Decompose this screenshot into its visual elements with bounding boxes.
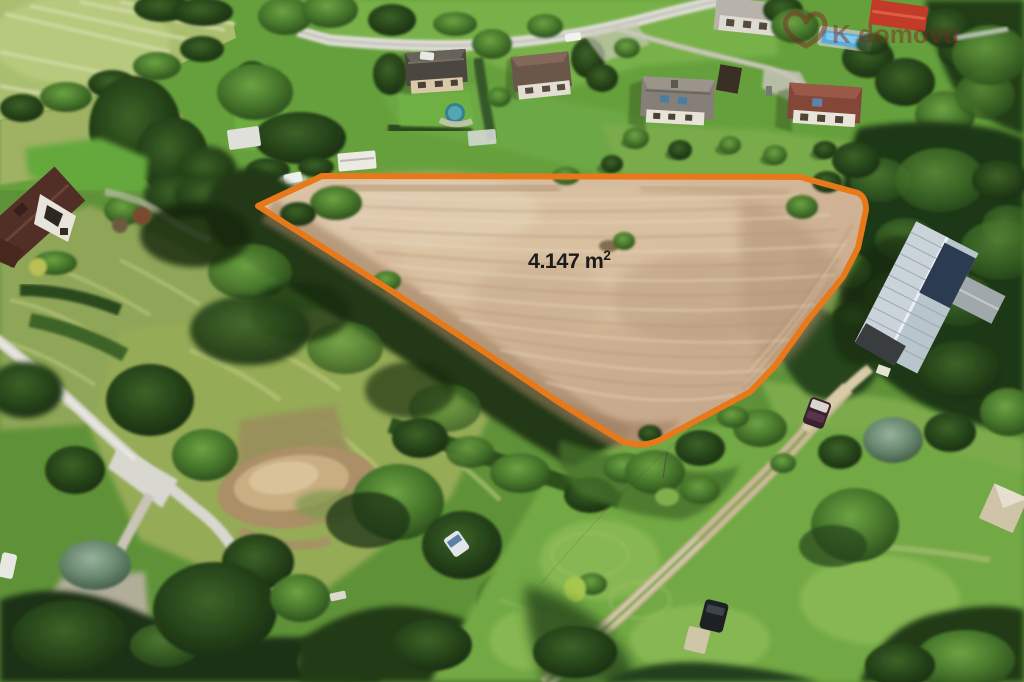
svg-text:K domovu: K domovu — [832, 19, 959, 49]
svg-text:4.147 m2: 4.147 m2 — [528, 248, 610, 273]
